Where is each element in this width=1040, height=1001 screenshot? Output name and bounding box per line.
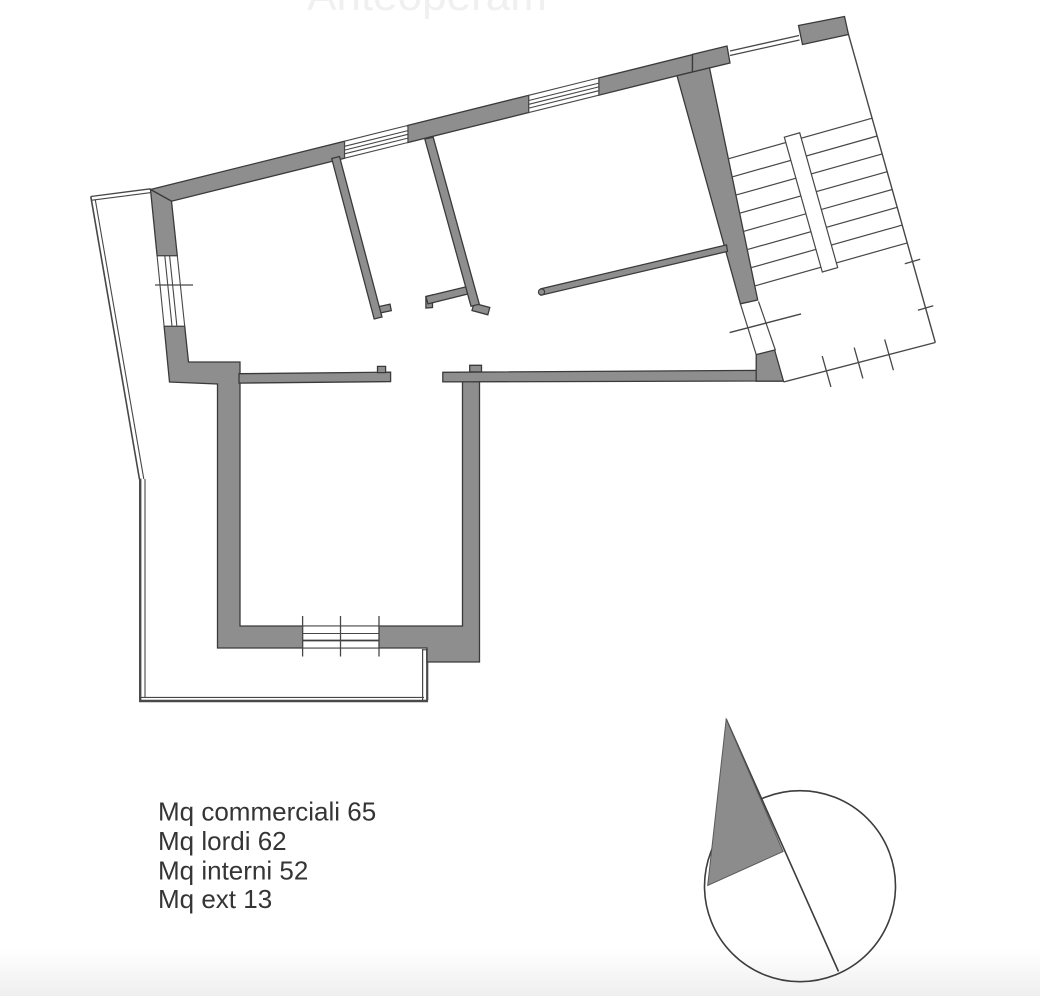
svg-text:Mq lordi 62: Mq lordi 62 bbox=[158, 826, 287, 856]
svg-text:Anteoperam: Anteoperam bbox=[307, 0, 547, 20]
svg-text:Mq ext 13: Mq ext 13 bbox=[158, 884, 272, 914]
svg-text:Mq commerciali 65: Mq commerciali 65 bbox=[158, 796, 376, 826]
svg-text:Mq interni 52: Mq interni 52 bbox=[158, 856, 308, 886]
